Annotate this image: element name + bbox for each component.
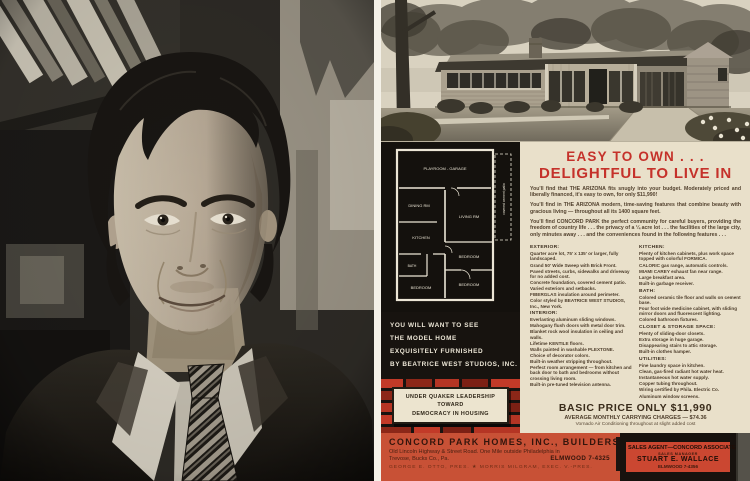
feature-item: Concrete foundation, covered cement pati… (530, 280, 632, 285)
agent-name: STUART E. WALLACE (628, 456, 728, 463)
air-conditioning-note: Vornado Air Conditioning throughout at s… (530, 422, 741, 427)
builder-info: CONCORD PARK HOMES, INC., BUILDERS Old L… (381, 433, 616, 481)
plaque-line: DEMOCRACY IN HOUSING (394, 410, 507, 418)
feature-item: Varied exteriors and setbacks. (530, 286, 632, 291)
feature-item: Fine laundry space in kitchen. (639, 363, 741, 368)
feature-item: Aluminum window screens. (639, 394, 741, 399)
room-label-bath: BATH (408, 264, 417, 268)
footer-band: CONCORD PARK HOMES, INC., BUILDERS Old L… (381, 433, 750, 481)
model-home-line: BY BEATRICE WEST STUDIOS, INC. (390, 358, 512, 371)
feature-item: Colored bathroom fixtures. (639, 317, 741, 322)
room-label-dining: DINING RM (408, 203, 429, 208)
feature-item: Mahogany flush doors with metal door tri… (530, 323, 632, 328)
concord-park-advertisement: PLAYROOM - GARAGE DINING RM LIVING RM KI… (381, 0, 750, 481)
feature-item: Large breakfast area. (639, 275, 741, 280)
portrait-photo (0, 0, 374, 481)
intro-paragraphs: You'll find that THE ARIZONA fits snugly… (530, 186, 741, 242)
address-line-2: Trevose, Bucks Co., Pa. (389, 456, 449, 462)
headline: EASY TO OWN . . . DELIGHTFUL TO LIVE IN (530, 149, 741, 182)
house-illustration (381, 0, 750, 142)
feature-item: Plenty of sliding-door closets. (639, 331, 741, 336)
plaque-line: UNDER QUAKER LEADERSHIP (394, 393, 507, 401)
feature-item: Paved streets, curbs, sidewalks and driv… (530, 269, 632, 279)
intro-paragraph: You'll find CONCORD PARK the perfect com… (530, 219, 741, 239)
feature-item: Everlasting aluminum sliding windows. (530, 317, 632, 322)
section-heading-bath: BATH: (639, 289, 741, 294)
basic-price: BASIC PRICE ONLY $11,990 (530, 402, 741, 414)
kitchen-items: Plenty of kitchen cabinets, plus work sp… (639, 251, 741, 286)
feature-item: Walls painted in washable PLEXTONE. (530, 347, 632, 352)
plaque-line: TOWARD (394, 401, 507, 409)
model-home-box: YOU WILL WANT TO SEE THE MODEL HOME EXQU… (381, 312, 520, 378)
company-name: CONCORD PARK HOMES, INC., BUILDERS (389, 437, 610, 447)
feature-item: Built-in clothes hamper. (639, 349, 741, 354)
feature-item: Four foot wide medicine cabinet, with sl… (639, 306, 741, 316)
panel-divider (374, 0, 381, 481)
feature-item: Plenty of kitchen cabinets, plus work sp… (639, 251, 741, 261)
scanned-collage: PLAYROOM - GARAGE DINING RM LIVING RM KI… (0, 0, 750, 481)
price-block: BASIC PRICE ONLY $11,990 AVERAGE MONTHLY… (530, 402, 741, 427)
feature-item: Perfect room arrangement — from kitchen … (530, 365, 632, 380)
room-label-playroom-garage: PLAYROOM - GARAGE (423, 166, 466, 171)
feature-item: Extra storage in huge garage. (639, 337, 741, 342)
feature-item: Wiring certified by Phila. Electric Co. (639, 387, 741, 392)
feature-item: Built-in weather stripping throughout. (530, 359, 632, 364)
closet-items: Plenty of sliding-door closets.Extra sto… (639, 331, 741, 355)
feature-item: Built-in pre-tuned television antenna. (530, 382, 632, 387)
interior-items: Everlasting aluminum sliding windows.Mah… (530, 317, 632, 387)
floor-plan: PLAYROOM - GARAGE DINING RM LIVING RM KI… (381, 142, 520, 312)
feature-lists: EXTERIOR: Quarter acre lot, 75' x 135' o… (530, 243, 741, 400)
model-home-line: THE MODEL HOME (390, 332, 512, 345)
bath-items: Colored ceramic tile floor and walls on … (639, 295, 741, 323)
feature-item: Instantaneous hot water supply. (639, 375, 741, 380)
exterior-items: Quarter acre lot, 75' x 135' or larger, … (530, 251, 632, 308)
sales-agent-box: SALES AGENT—CONCORD ASSOCIATES SALES MAN… (626, 442, 730, 472)
quaker-plaque: UNDER QUAKER LEADERSHIP TOWARD DEMOCRACY… (392, 387, 509, 424)
room-label-bedroom-3: BEDROOM (459, 254, 480, 259)
feature-item: Disappearing stairs to attic storage. (639, 343, 741, 348)
section-heading-closet: CLOSET & STORAGE SPACE: (639, 325, 741, 330)
feature-item: CALORIC gas range, automatic controls. (639, 263, 741, 268)
section-heading-kitchen: KITCHEN: (639, 245, 741, 250)
room-label-kitchen: KITCHEN (412, 235, 430, 240)
feature-item: Colored ceramic tile floor and walls on … (639, 295, 741, 305)
agent-title: SALES AGENT—CONCORD ASSOCIATES (628, 445, 728, 451)
officers-line: GEORGE E. OTTO, PRES. ★ MORRIS MILGRAM, … (389, 464, 610, 470)
feature-item: FIBERGLAS insulation around perimeter. (530, 292, 632, 297)
patio-label: covered cement patio (502, 183, 506, 215)
model-home-line: EXQUISITELY FURNISHED (390, 345, 512, 358)
ad-text-column: EASY TO OWN . . . DELIGHTFUL TO LIVE IN … (520, 142, 750, 433)
feature-item: Color styled by BEATRICE WEST STUDIOS, I… (530, 298, 632, 308)
section-heading-interior: INTERIOR: (530, 311, 632, 316)
model-home-line: YOU WILL WANT TO SEE (390, 319, 512, 332)
feature-item: Clean, gas-fired radiant hot water heat. (639, 369, 741, 374)
brick-band: UNDER QUAKER LEADERSHIP TOWARD DEMOCRACY… (381, 378, 520, 433)
room-label-bedroom-1: BEDROOM (459, 282, 480, 287)
headline-line-2: DELIGHTFUL TO LIVE IN (530, 165, 741, 182)
carrying-charges: AVERAGE MONTHLY CARRYING CHARGES — $74.3… (530, 415, 741, 421)
section-heading-exterior: EXTERIOR: (530, 245, 632, 250)
feature-item: Lifetime KENTILE floors. (530, 341, 632, 346)
feature-item: Blanket rock wool insulation in ceiling … (530, 329, 632, 339)
feature-item: Quarter acre lot, 75' x 135' or larger, … (530, 251, 632, 261)
scan-page-edge (736, 433, 750, 481)
section-heading-utilities: UTILITIES: (639, 357, 741, 362)
feature-item: Grand 50' Wide Sweep with Brick Front. (530, 263, 632, 268)
headline-line-1: EASY TO OWN . . . (530, 149, 741, 165)
sales-agent-panel: SALES AGENT—CONCORD ASSOCIATES SALES MAN… (620, 433, 736, 481)
features-right-column: KITCHEN: Plenty of kitchen cabinets, plu… (639, 243, 741, 400)
utilities-items: Fine laundry space in kitchen.Clean, gas… (639, 363, 741, 399)
intro-paragraph: You'll find that THE ARIZONA fits snugly… (530, 186, 741, 199)
room-label-bedroom-2: BEDROOM (411, 285, 432, 290)
feature-item: MIAMI CAREY exhaust fan near range. (639, 269, 741, 274)
features-left-column: EXTERIOR: Quarter acre lot, 75' x 135' o… (530, 243, 632, 400)
builder-phone: ELMWOOD 7-4325 (550, 455, 610, 462)
feature-item: Choice of decorator colors. (530, 353, 632, 358)
portrait-illustration (0, 0, 374, 481)
intro-paragraph: You'll find in THE ARIZONA modern, time-… (530, 202, 741, 215)
room-label-living: LIVING RM (459, 214, 479, 219)
feature-item: Copper tubing throughout. (639, 381, 741, 386)
feature-item: Built-in garbage receiver. (639, 281, 741, 286)
agent-phone: ELMWOOD 7-4356 (628, 464, 728, 469)
